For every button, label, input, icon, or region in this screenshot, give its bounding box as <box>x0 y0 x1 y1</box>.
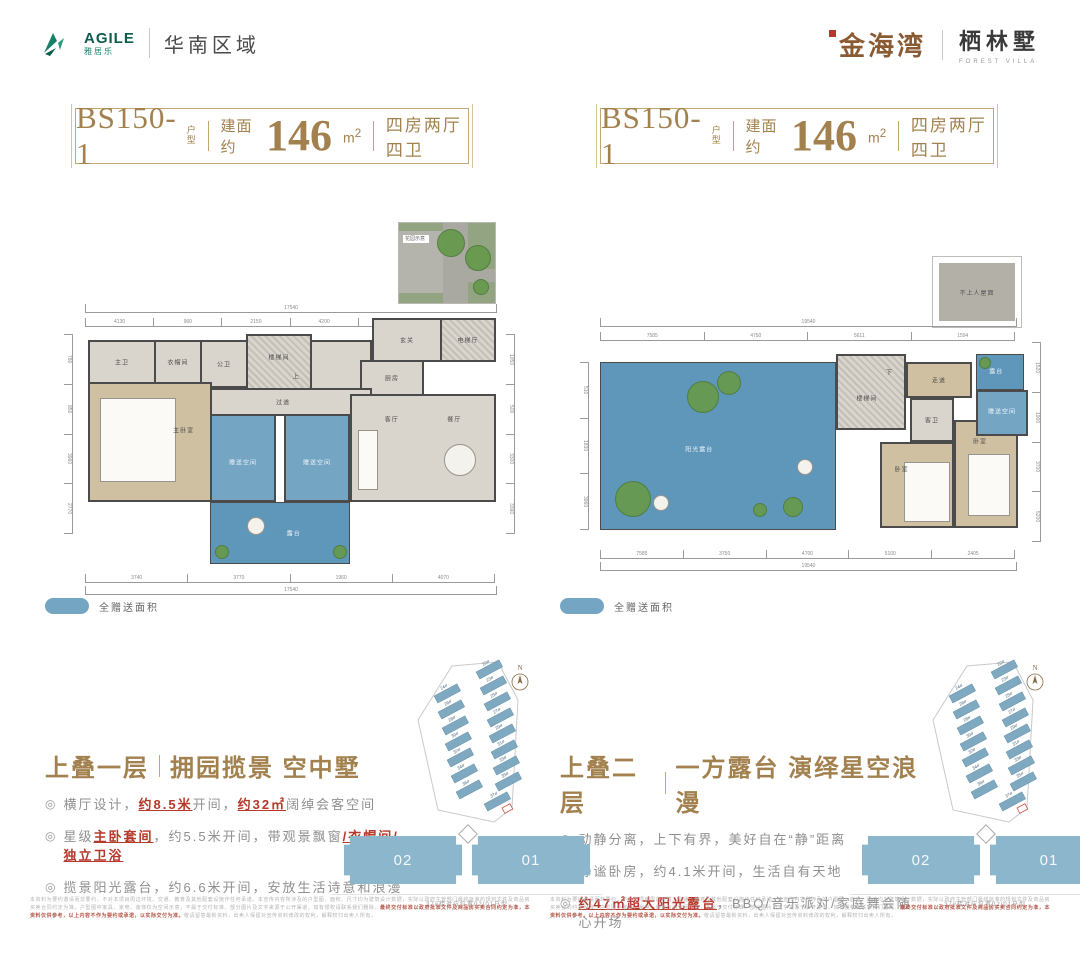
room-master-bedroom: 主卧室 <box>88 382 212 502</box>
header-left: AGILE 雅居乐 华南区域 <box>40 28 260 58</box>
disclaimer-right: 本资料为要约邀请而非要约，不对本项目周边环境、交通、教育及其他配套设施作任何承诺… <box>550 896 1050 920</box>
room-closet: 衣帽间 <box>154 340 202 384</box>
room-count: 四房两厅四卫 <box>911 111 993 161</box>
tree-icon <box>615 481 651 517</box>
header-right: 金海湾 栖林墅 FOREST VILLA <box>829 24 1040 65</box>
room-gift-space-b: 赠送空间 <box>284 414 350 502</box>
svg-text:N: N <box>1032 664 1037 672</box>
dim-total-top: 19540 <box>600 318 1017 327</box>
dim-total-top: 17540 <box>85 304 497 313</box>
room-elevator-hall: 电梯厅 <box>440 318 496 362</box>
tree-icon <box>783 497 803 517</box>
agile-logo-icon <box>40 28 70 58</box>
unit-code-tag: 户型 <box>712 126 721 146</box>
unit-block-02: 02 <box>862 836 980 884</box>
room-bedroom-a: 卧室 <box>880 442 954 528</box>
bullet-icon: ◎ <box>45 796 57 815</box>
dim-row-bottom: 75853750470051002405 <box>600 550 1015 559</box>
header-divider <box>942 30 943 60</box>
area-unit: m2 <box>343 127 361 146</box>
bullet-icon: ◎ <box>45 879 57 898</box>
unit-block-02: 02 <box>344 836 462 884</box>
room-gift-space-a: 赠送空间 <box>210 414 276 502</box>
area-value: 146 <box>791 114 857 158</box>
title-divider <box>373 121 374 151</box>
room-living-dining: 客厅 餐厅 <box>350 394 496 502</box>
tree-icon <box>473 279 489 295</box>
title-divider <box>898 121 899 151</box>
unit-code-tag: 户型 <box>187 126 196 146</box>
area-prefix: 建面约 <box>745 115 780 157</box>
room-bedroom-b: 卧室 <box>954 420 1018 528</box>
tree-icon <box>215 545 229 559</box>
legend-right: 全赠送面积 <box>560 598 674 614</box>
room-hall: 走道 <box>906 362 972 398</box>
title-divider <box>208 121 209 151</box>
dim-row-bottom: 3740377019604070 <box>85 574 495 583</box>
product-logo: 栖林墅 FOREST VILLA <box>959 24 1040 65</box>
roof-label: 不上人屋面 <box>959 288 994 297</box>
sofa <box>358 430 378 490</box>
tree-icon <box>437 229 465 257</box>
dim-row-top: 7585475056111594 <box>600 332 1015 341</box>
room-guest-bath: 客卫 <box>910 398 954 442</box>
svg-text:N: N <box>517 664 522 672</box>
garden-inset: 花园示意 <box>398 222 496 304</box>
room-terrace: 露台 <box>210 502 350 564</box>
tree-icon <box>465 245 491 271</box>
legend-label: 全赠送面积 <box>99 599 159 614</box>
room-stairwell: 楼梯间 上 <box>246 334 312 390</box>
patio-table <box>247 517 265 535</box>
dining-table <box>444 444 476 476</box>
bullet-icon: ◎ <box>45 828 57 866</box>
room-gift-space: 赠送空间 <box>976 390 1028 436</box>
unit-title-box-right: BS150-1 户型 建面约 146 m2 四房两厅四卫 <box>600 108 994 164</box>
unit-code: BS150-1 <box>76 100 177 172</box>
tree-icon <box>979 357 991 369</box>
patio-table <box>653 495 669 511</box>
region-label: 华南区域 <box>164 29 260 58</box>
room-stairwell: 楼梯间 下 <box>836 354 906 430</box>
tree-icon <box>333 545 347 559</box>
patio-table <box>797 459 813 475</box>
unit-block-01: 01 <box>990 836 1080 884</box>
dim-col-right: 1520190037005200 <box>1032 342 1041 542</box>
site-map-left: 22#23#24#25#26#27#28#29#30#31#32#33#34#3… <box>398 658 538 830</box>
dim-col-right: 105050033003390 <box>506 334 515 534</box>
dim-col-left: 51018303960 <box>580 362 589 530</box>
disclaimer-left: 本资料为要约邀请而非要约，不对本项目周边环境、交通、教育及其他配套设施作任何承诺… <box>30 896 530 920</box>
garden-path <box>443 269 495 282</box>
unit-block-01: 01 <box>472 836 590 884</box>
project-logo: 金海湾 <box>829 26 926 63</box>
area-prefix: 建面约 <box>220 115 255 157</box>
section-title: 上叠一层 拥园揽景 空中墅 <box>45 748 405 783</box>
dim-total-bottom: 19540 <box>600 562 1017 571</box>
legend-swatch <box>45 598 89 614</box>
room-foyer: 玄关 <box>372 318 442 362</box>
legend-swatch <box>560 598 604 614</box>
legend-left: 全赠送面积 <box>45 598 159 614</box>
brand-name-en: AGILE <box>84 31 135 46</box>
room-guest-bath: 公卫 <box>200 340 248 388</box>
tree-icon <box>753 503 767 517</box>
room-sun-terrace: 阳光露台 <box>600 362 836 530</box>
room-balcony: 露台 <box>976 354 1024 390</box>
brand-name-cn: 雅居乐 <box>84 48 135 56</box>
area-unit: m2 <box>868 127 886 146</box>
bed <box>904 462 950 522</box>
dim-total-bottom: 17540 <box>85 586 497 595</box>
feature-bullet: ◎ 横厅设计，约8.5米开间，约32㎡阔绰会客空间 <box>45 796 405 815</box>
floor-plan-level2: 不上人屋面 19540 7585475056111594 阳光露台 楼梯间 下 … <box>580 222 1040 594</box>
title-divider <box>733 121 734 151</box>
garden-inset-label: 花园示意 <box>403 235 429 243</box>
header-divider <box>149 28 150 58</box>
unit-code: BS150-1 <box>601 100 702 172</box>
bed <box>968 454 1010 516</box>
tree-icon <box>717 371 741 395</box>
area-value: 146 <box>266 114 332 158</box>
legend-label: 全赠送面积 <box>614 599 674 614</box>
title-separator <box>665 772 666 794</box>
bed <box>100 398 176 482</box>
seal-icon <box>829 30 836 37</box>
unit-title-box-left: BS150-1 户型 建面约 146 m2 四房两厅四卫 <box>75 108 469 164</box>
floor-plan-level1: 花园示意 17540 41309602150420036001500 主卫 衣帽… <box>60 222 520 594</box>
dim-col-left: 78085039602770 <box>64 334 73 534</box>
tree-icon <box>687 381 719 413</box>
section-title: 上叠二层 一方露台 演绎星空浪漫 <box>560 748 920 818</box>
room-count: 四房两厅四卫 <box>386 111 468 161</box>
room-corridor: 过道 <box>210 388 372 416</box>
room-master-bath: 主卫 <box>88 340 156 384</box>
site-map-right: 22#23#24#25#26#27#28#29#30#31#32#33#34#3… <box>913 658 1053 830</box>
title-separator <box>159 755 160 777</box>
